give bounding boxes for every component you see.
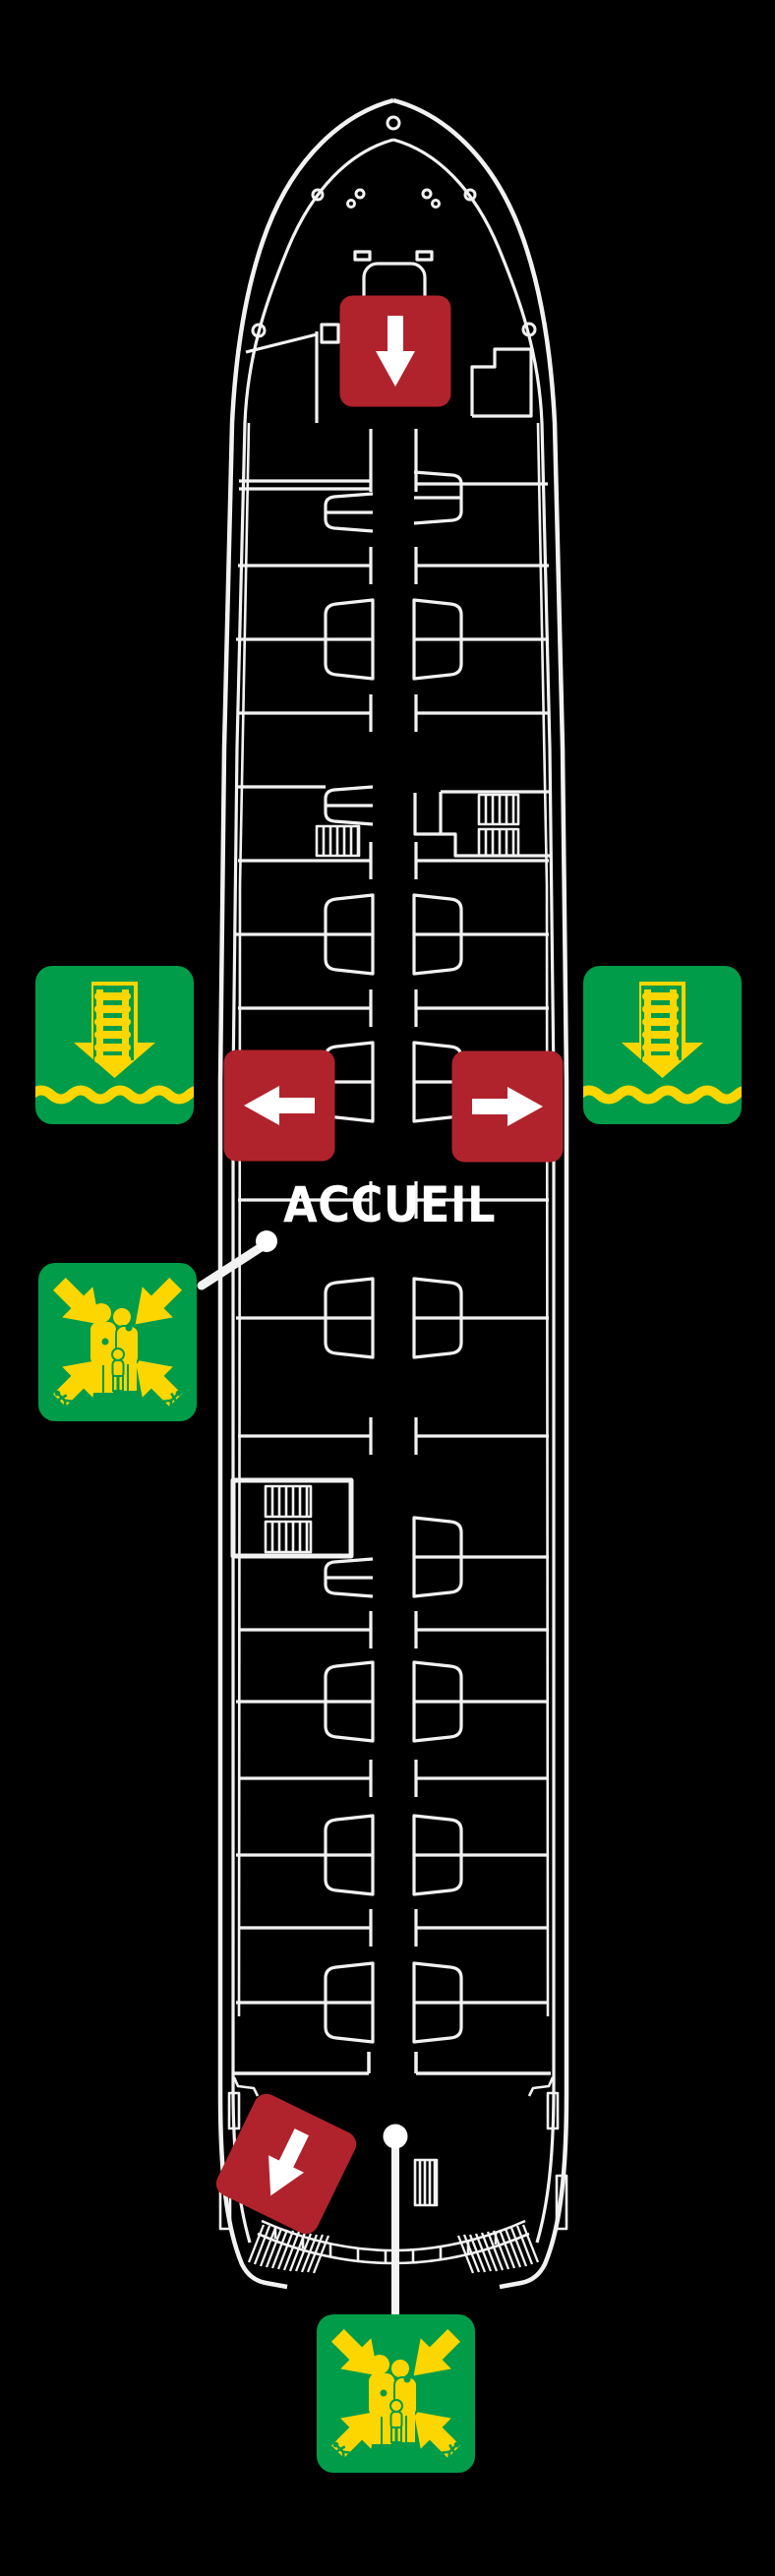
sign-embarkation-ladder-right <box>579 966 756 1124</box>
sign-assembly-point-mid <box>38 1263 197 1421</box>
sign-exit-right-mid <box>452 1051 564 1163</box>
sign-assembly-point-stern <box>317 2314 475 2473</box>
stairways <box>233 792 551 1556</box>
stern-marker <box>384 2125 408 2318</box>
deck-plan: ACCUEIL <box>0 0 775 2576</box>
stairwell-port-mid <box>233 1480 351 1556</box>
sign-embarkation-ladder-left <box>31 966 209 1124</box>
stairs-port-upper <box>317 826 359 856</box>
cabins-starboard <box>414 429 549 2042</box>
stern-dot <box>384 2125 408 2149</box>
reception-label: ACCUEIL <box>283 1176 496 1233</box>
sign-exit-left-mid <box>224 1050 335 1162</box>
cabins-port <box>236 429 373 2042</box>
sign-exit-down-bow <box>340 296 451 407</box>
reception-dot <box>256 1230 277 1252</box>
stairs-starboard-upper <box>415 792 551 856</box>
